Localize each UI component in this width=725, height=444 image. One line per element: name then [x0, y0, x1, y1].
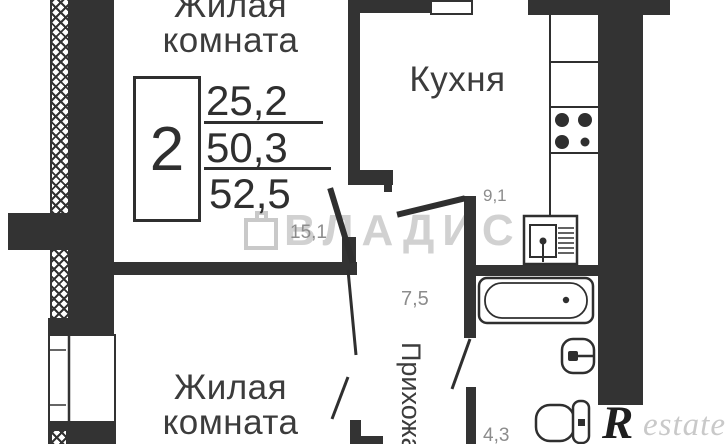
area-total: 52,5	[209, 173, 291, 215]
area-label-hallway: 7,5	[401, 288, 429, 311]
brand-initial: R	[602, 396, 633, 444]
toilet-icon	[536, 401, 589, 443]
floor-plan: ВЛАДИС	[0, 0, 725, 444]
room-count-box: 2	[133, 76, 201, 222]
fixtures-layer	[0, 0, 725, 444]
kitchen-sink-icon	[524, 216, 577, 264]
area-secondary: 50,3	[206, 127, 288, 169]
washbasin-icon	[562, 339, 594, 373]
room-label-living2-line1: Жилая	[138, 370, 323, 405]
room-label-living2-line2: комната	[138, 405, 323, 440]
room-label-living2: Жилая комната	[138, 370, 323, 440]
area-label-kitchen: 9,1	[483, 186, 507, 206]
area-living-total: 25,2	[206, 80, 288, 122]
room-label-hallway: Прихожая	[395, 342, 426, 444]
room-label-living1-line2: комната	[138, 23, 323, 58]
area-label-living1: 15,1	[290, 222, 327, 244]
stove-icon	[555, 113, 592, 149]
area-label-wc: 4,3	[483, 425, 509, 444]
room-label-kitchen: Кухня	[395, 62, 520, 97]
room-label-living1-line1: Жилая	[138, 0, 323, 23]
window-glazing	[50, 336, 69, 421]
bathtub-icon	[479, 278, 593, 323]
room-label-living1: Жилая комната	[138, 0, 323, 58]
brand-text: estate	[643, 407, 725, 444]
